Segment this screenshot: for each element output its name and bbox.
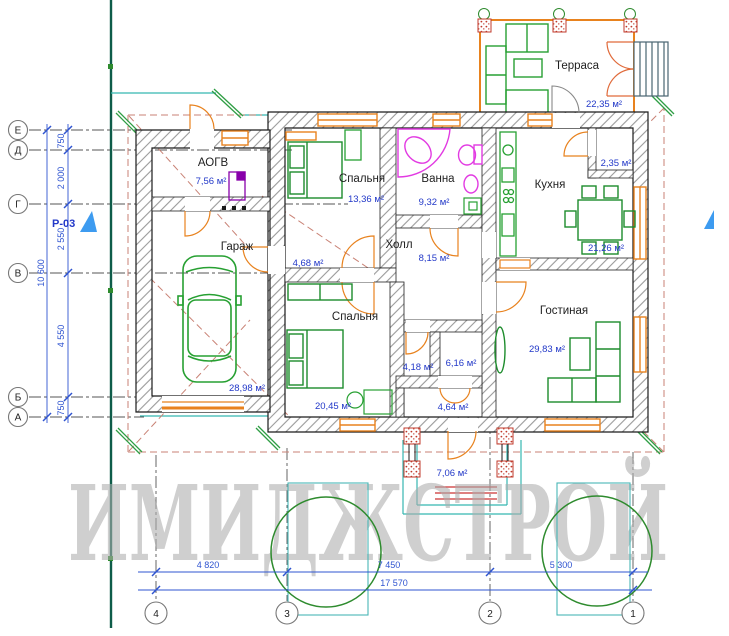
room-area-corridor: 4,68 м² <box>293 258 324 269</box>
dim-h-0: 4 820 <box>197 560 220 570</box>
car <box>178 256 241 382</box>
room-area-porch: 7,06 м² <box>437 468 468 479</box>
room-area-terrace: 22,35 м² <box>586 99 622 110</box>
window <box>222 131 248 145</box>
window <box>433 114 460 126</box>
room-label-aogv: АОГВ <box>198 157 229 169</box>
dim-h-total: 17 570 <box>380 578 408 588</box>
window <box>634 317 646 372</box>
room-label-terrace: Терраса <box>555 60 600 72</box>
section-marker-arrow-right-icon <box>704 210 714 229</box>
svg-text:Б: Б <box>15 393 22 404</box>
kitchen-terrace-door <box>552 86 579 113</box>
window <box>545 419 600 431</box>
floor-plan-canvas: ИМИДЖСТРОЙ 750 2 000 2 550 4 550 750 10 … <box>0 0 729 636</box>
svg-text:А: А <box>15 413 22 424</box>
dim-v-4: 750 <box>56 400 66 415</box>
room-area-vestibule: 4,64 м² <box>438 402 469 413</box>
room-area-garage: 28,98 м² <box>229 383 265 394</box>
svg-text:4: 4 <box>153 609 159 620</box>
stairs <box>634 42 668 96</box>
radiator <box>286 132 316 140</box>
room-area-bedroom2: 20,45 м² <box>315 401 351 412</box>
dim-v-3: 4 550 <box>56 325 66 348</box>
grid-bubble-row-a: А <box>9 408 28 427</box>
room-area-616: 6,16 м² <box>446 358 477 369</box>
grid-bubble-col-2: 2 <box>479 602 501 624</box>
room-area-kitchen: 21,26 м² <box>588 243 624 254</box>
grid-bubble-col-3: 3 <box>276 602 298 624</box>
kitchen-counter <box>500 132 516 256</box>
section-marker-label: Р-03 <box>52 218 75 230</box>
dresser-bedroom1 <box>345 130 361 160</box>
interior-walls <box>152 128 633 417</box>
grid-bubble-row-v: В <box>9 264 28 283</box>
room-area-pantry: 2,35 м² <box>601 158 632 169</box>
room-label-bedroom2: Спальня <box>332 311 378 323</box>
room-area-bedroom1: 13,36 м² <box>348 194 384 205</box>
window <box>318 114 377 126</box>
grid-bubble-row-d: Д <box>9 141 28 160</box>
svg-text:Е: Е <box>15 126 22 137</box>
room-area-bath: 9,32 м² <box>419 197 450 208</box>
room-area-aogv: 7,56 м² <box>196 176 227 187</box>
room-area-living: 29,83 м² <box>529 344 565 355</box>
dim-v-total: 10 600 <box>36 259 46 287</box>
sofa-living <box>495 322 620 402</box>
bed-bedroom2 <box>287 284 352 388</box>
svg-text:3: 3 <box>284 609 290 620</box>
grid-bubble-row-e: Е <box>9 121 28 140</box>
grid-bubble-col-4: 4 <box>145 602 167 624</box>
grid-bubble-col-1: 1 <box>622 602 644 624</box>
terrace-sofa-set <box>486 24 548 114</box>
washer <box>464 198 481 214</box>
svg-text:Г: Г <box>15 200 21 211</box>
window <box>340 419 375 431</box>
dim-v-2: 2 550 <box>56 228 66 251</box>
room-label-bath: Ванна <box>421 173 455 185</box>
dim-h-2: 5 300 <box>550 560 573 570</box>
svg-text:Д: Д <box>15 146 22 157</box>
desk-bedroom2 <box>347 390 392 414</box>
svg-text:2: 2 <box>487 609 493 620</box>
svg-text:В: В <box>15 269 22 280</box>
section-marker-arrow-icon <box>80 211 97 232</box>
room-label-kitchen: Кухня <box>535 179 566 191</box>
room-label-hall: Холл <box>385 239 412 251</box>
room-label-living: Гостиная <box>540 305 588 317</box>
room-area-hall: 8,15 м² <box>419 253 450 264</box>
svg-text:1: 1 <box>630 609 636 620</box>
room-label-bedroom1: Спальня <box>339 173 385 185</box>
dim-h-1: 7 450 <box>378 560 401 570</box>
room-label-garage: Гараж <box>221 241 254 253</box>
room-area-418: 4,18 м² <box>403 362 434 373</box>
dim-v-0: 750 <box>56 133 66 148</box>
grid-bubble-row-g: Г <box>9 195 28 214</box>
grid-bubble-row-b: Б <box>9 388 28 407</box>
dim-v-1: 2 000 <box>56 167 66 190</box>
window <box>528 114 552 126</box>
window <box>634 187 646 259</box>
bed-bedroom1 <box>288 142 342 198</box>
floor-plan-drawing: ИМИДЖСТРОЙ 750 2 000 2 550 4 550 750 10 … <box>0 0 729 636</box>
terrace-french-doors <box>607 42 633 96</box>
